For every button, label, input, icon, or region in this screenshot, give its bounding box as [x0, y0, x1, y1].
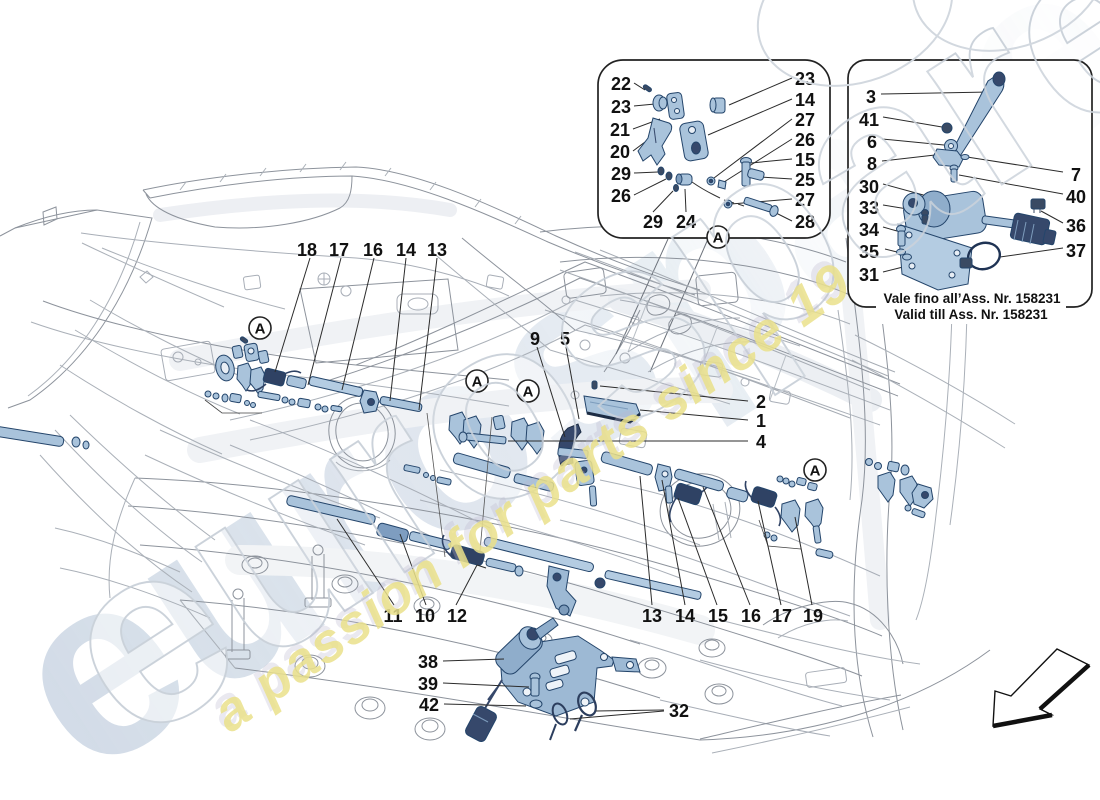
- svg-text:24: 24: [676, 212, 696, 232]
- svg-text:42: 42: [419, 695, 439, 715]
- svg-text:27: 27: [795, 110, 815, 130]
- svg-text:25: 25: [795, 170, 815, 190]
- svg-text:39: 39: [418, 674, 438, 694]
- svg-text:8: 8: [867, 154, 877, 174]
- svg-text:22: 22: [611, 74, 631, 94]
- svg-text:28: 28: [795, 212, 815, 232]
- svg-text:13: 13: [427, 240, 447, 260]
- svg-text:15: 15: [795, 150, 815, 170]
- svg-text:27: 27: [795, 190, 815, 210]
- svg-text:30: 30: [859, 177, 879, 197]
- svg-text:16: 16: [363, 240, 383, 260]
- svg-text:29: 29: [643, 212, 663, 232]
- svg-text:7: 7: [1071, 165, 1081, 185]
- svg-text:34: 34: [859, 220, 879, 240]
- svg-text:33: 33: [859, 198, 879, 218]
- svg-text:14: 14: [396, 240, 416, 260]
- svg-text:10: 10: [415, 606, 435, 626]
- svg-text:13: 13: [642, 606, 662, 626]
- svg-text:11: 11: [383, 606, 402, 626]
- svg-text:23: 23: [611, 97, 631, 117]
- svg-text:18: 18: [297, 240, 317, 260]
- svg-text:9: 9: [530, 329, 540, 349]
- svg-text:17: 17: [772, 606, 792, 626]
- svg-text:40: 40: [1066, 187, 1086, 207]
- svg-text:37: 37: [1066, 241, 1086, 261]
- svg-text:19: 19: [803, 606, 823, 626]
- svg-text:31: 31: [859, 265, 879, 285]
- svg-text:26: 26: [795, 130, 815, 150]
- svg-text:41: 41: [859, 110, 879, 130]
- svg-text:A: A: [523, 384, 534, 401]
- svg-text:A: A: [472, 374, 483, 391]
- svg-text:20: 20: [610, 142, 630, 162]
- svg-text:16: 16: [741, 606, 761, 626]
- svg-text:35: 35: [859, 242, 879, 262]
- svg-text:15: 15: [708, 606, 728, 626]
- svg-text:29: 29: [611, 164, 631, 184]
- svg-text:26: 26: [611, 186, 631, 206]
- svg-text:3: 3: [866, 87, 876, 107]
- svg-text:A: A: [810, 463, 821, 480]
- svg-text:36: 36: [1066, 216, 1086, 236]
- svg-text:23: 23: [795, 69, 815, 89]
- svg-text:14: 14: [675, 606, 695, 626]
- svg-text:A: A: [255, 321, 266, 338]
- svg-text:6: 6: [867, 132, 877, 152]
- svg-text:38: 38: [418, 652, 438, 672]
- svg-text:21: 21: [610, 120, 630, 140]
- svg-text:14: 14: [795, 90, 815, 110]
- svg-text:4: 4: [756, 432, 766, 452]
- svg-text:2: 2: [756, 392, 766, 412]
- svg-text:Valid till Ass. Nr. 158231: Valid till Ass. Nr. 158231: [894, 307, 1048, 322]
- svg-text:12: 12: [447, 606, 467, 626]
- svg-text:17: 17: [329, 240, 349, 260]
- svg-text:A: A: [713, 230, 724, 247]
- svg-text:5: 5: [560, 329, 570, 349]
- svg-text:1: 1: [756, 411, 766, 431]
- svg-text:32: 32: [669, 701, 689, 721]
- svg-text:Vale fino all’Ass. Nr. 158231: Vale fino all’Ass. Nr. 158231: [883, 291, 1061, 306]
